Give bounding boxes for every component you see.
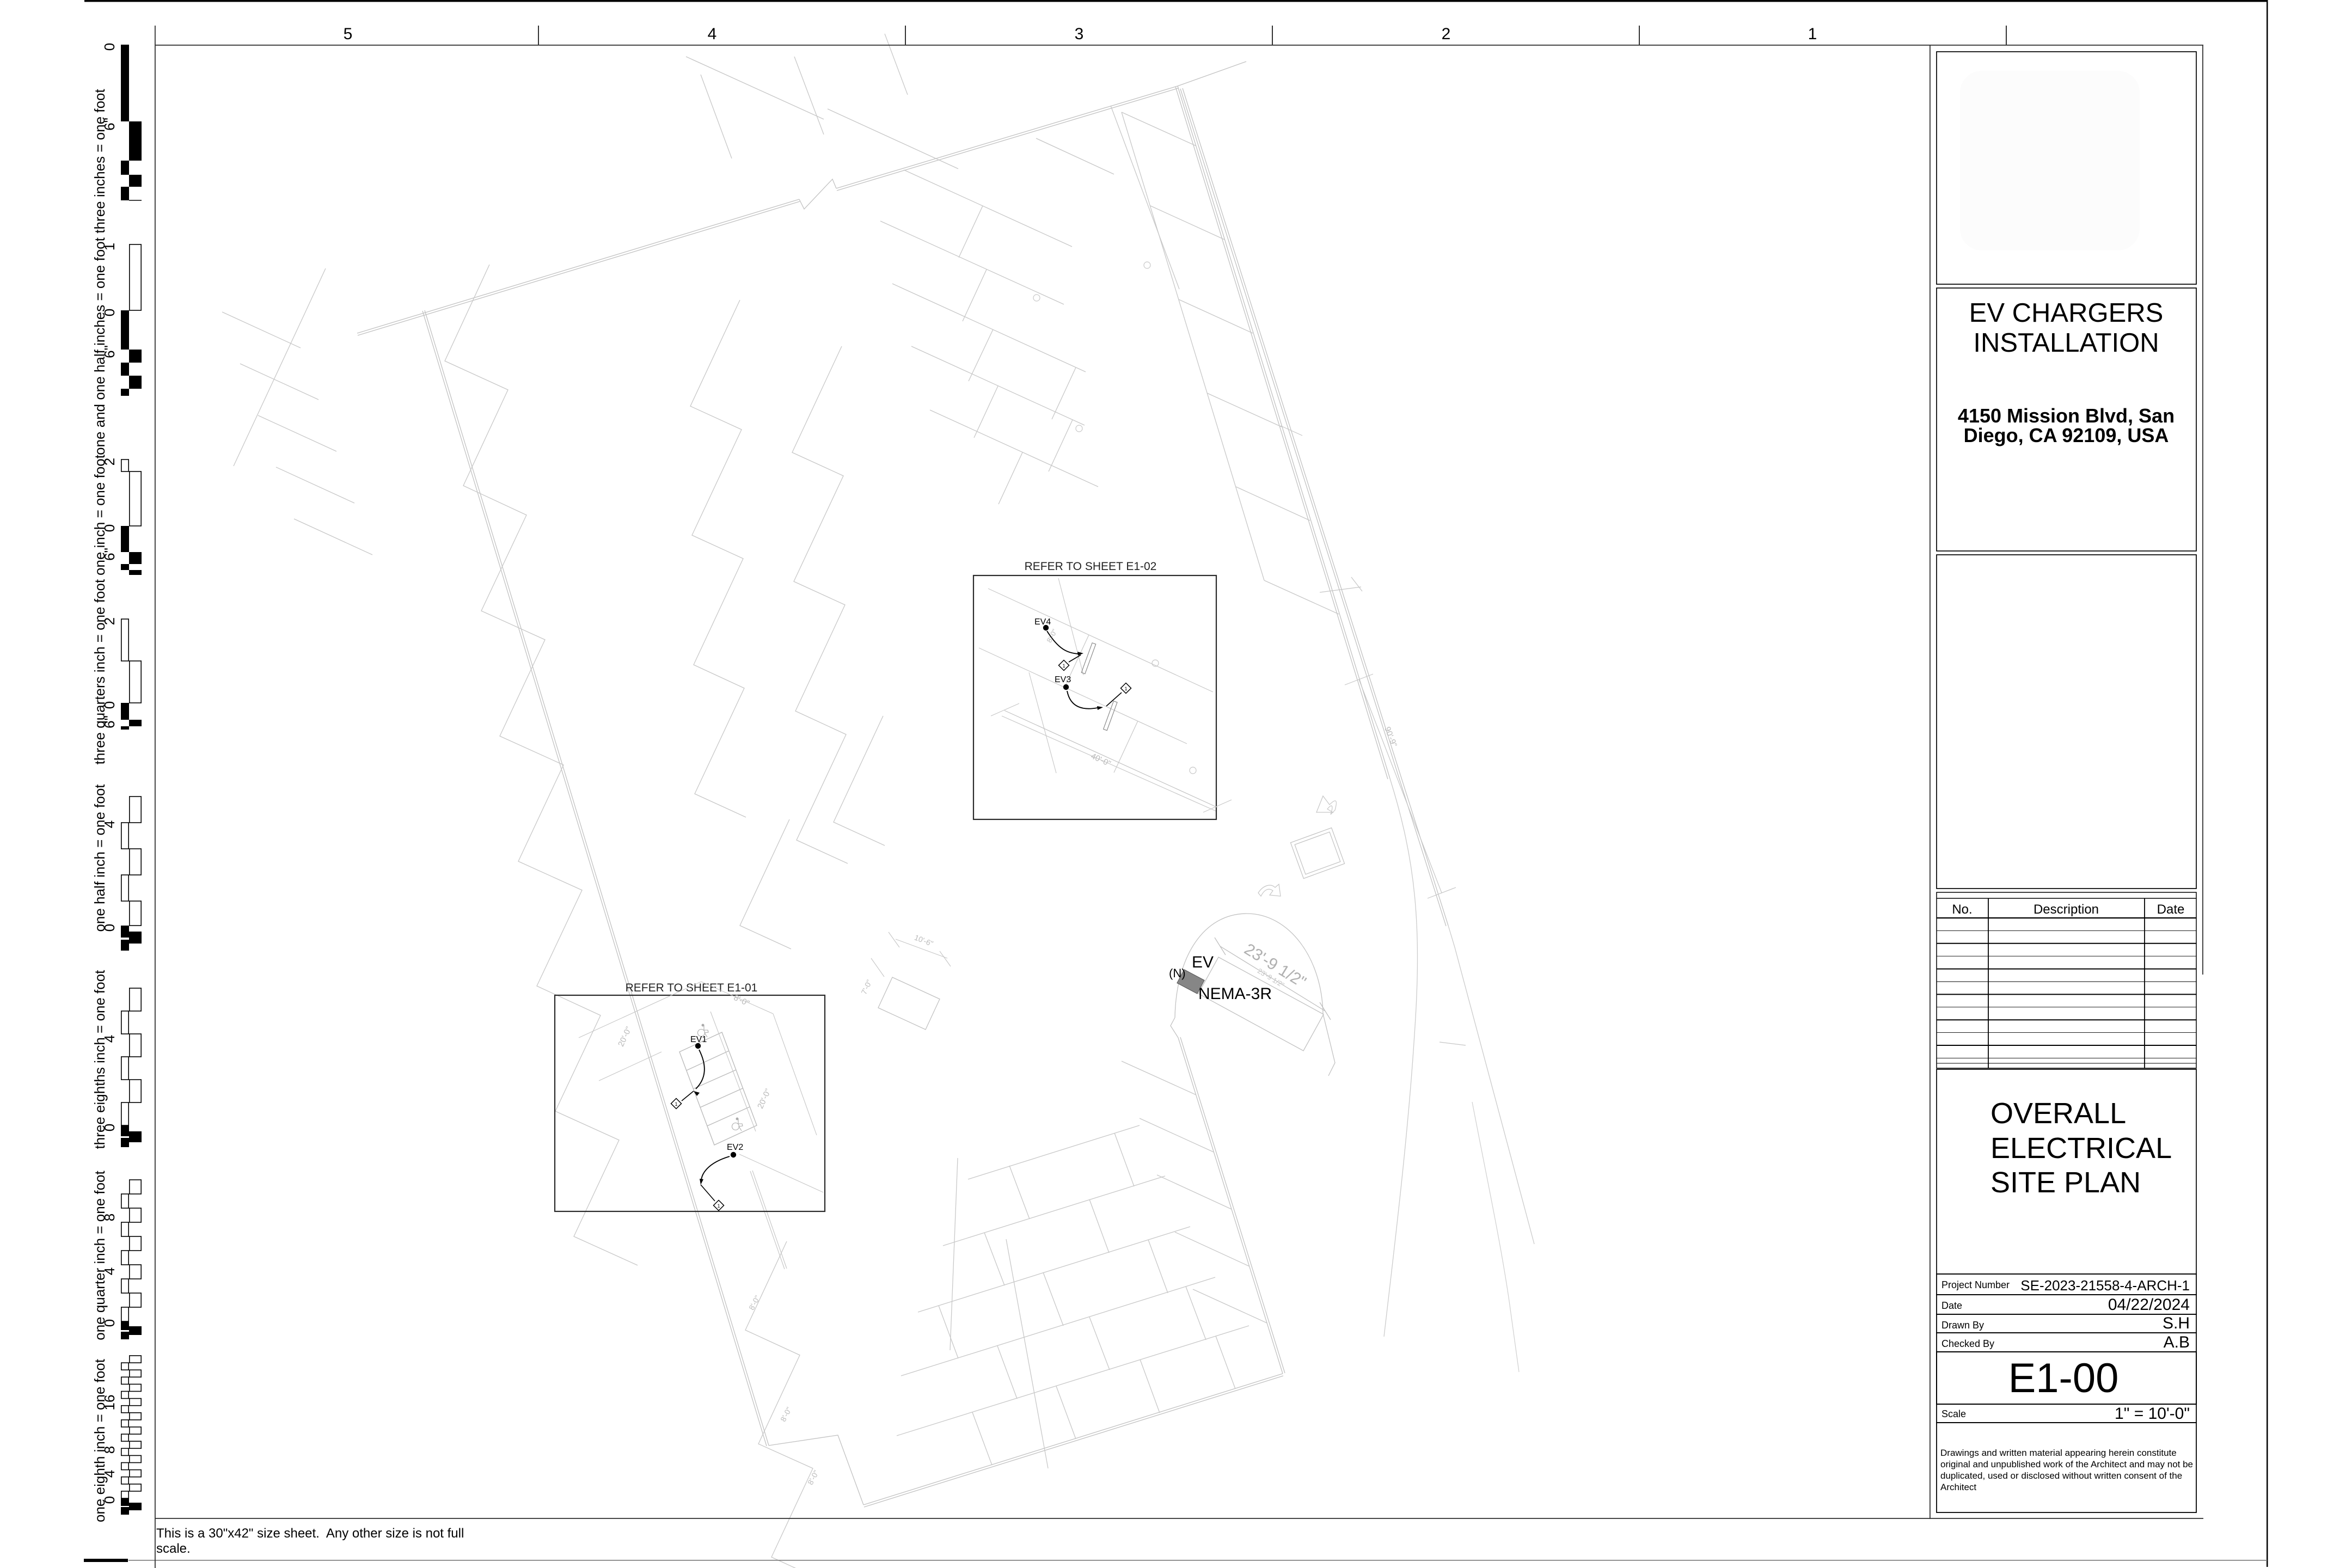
svg-text:one quarter inch = one foot: one quarter inch = one foot — [91, 1170, 108, 1340]
svg-text:one inch = one foot: one inch = one foot — [91, 454, 108, 575]
svg-text:OVERALL: OVERALL — [1990, 1097, 2126, 1130]
svg-text:EV: EV — [1192, 953, 1214, 971]
svg-text:duplicated, used or disclosed: duplicated, used or disclosed without wr… — [1940, 1471, 2182, 1481]
svg-text:Diego, CA 92109, USA: Diego, CA 92109, USA — [1964, 424, 2169, 446]
svg-text:4: 4 — [708, 25, 717, 43]
svg-text:EV CHARGERS: EV CHARGERS — [1969, 298, 2164, 328]
svg-text:INSTALLATION: INSTALLATION — [1973, 328, 2159, 358]
svg-text:Drawings and written material: Drawings and written material appearing … — [1940, 1448, 2177, 1458]
svg-text:1: 1 — [717, 1203, 720, 1209]
svg-text:This is a 30"x42" size sheet.: This is a 30"x42" size sheet. Any other … — [156, 1526, 464, 1541]
svg-text:1: 1 — [1808, 25, 1817, 43]
svg-text:EV3: EV3 — [1055, 675, 1071, 684]
svg-text:one and one half inches = one: one and one half inches = one foot — [91, 237, 108, 455]
svg-text:REFER TO SHEET E1-01: REFER TO SHEET E1-01 — [626, 982, 758, 994]
svg-text:E1-00: E1-00 — [2008, 1355, 2119, 1401]
svg-text:Checked By: Checked By — [1941, 1338, 1994, 1349]
svg-text:4150 Mission Blvd, San: 4150 Mission Blvd, San — [1958, 405, 2175, 427]
svg-text:0: 0 — [101, 43, 118, 51]
svg-text:REFER TO SHEET E1-02: REFER TO SHEET E1-02 — [1025, 560, 1157, 573]
svg-text:Date: Date — [1941, 1300, 1962, 1311]
svg-text:(N): (N) — [1169, 966, 1186, 980]
svg-text:3: 3 — [1075, 25, 1084, 43]
svg-text:Architect: Architect — [1940, 1482, 1976, 1492]
svg-text:scale.: scale. — [156, 1541, 191, 1556]
svg-text:2: 2 — [1442, 25, 1451, 43]
svg-text:1: 1 — [1124, 686, 1127, 691]
svg-text:three inches = one foot: three inches = one foot — [91, 89, 108, 234]
svg-text:SE-2023-21558-4-ARCH-1: SE-2023-21558-4-ARCH-1 — [2020, 1277, 2190, 1294]
svg-text:5: 5 — [344, 25, 353, 43]
svg-text:No.: No. — [1952, 902, 1972, 917]
svg-text:three quarters inch = one foot: three quarters inch = one foot — [91, 579, 108, 764]
svg-text:Project Number: Project Number — [1941, 1279, 2010, 1290]
svg-text:S.H: S.H — [2163, 1314, 2190, 1332]
svg-text:SITE PLAN: SITE PLAN — [1990, 1166, 2141, 1199]
svg-text:EV4: EV4 — [1034, 617, 1051, 627]
svg-text:A.B: A.B — [2164, 1333, 2190, 1351]
svg-text:Drawn By: Drawn By — [1941, 1320, 1984, 1331]
svg-text:ELECTRICAL: ELECTRICAL — [1990, 1132, 2172, 1165]
svg-text:04/22/2024: 04/22/2024 — [2108, 1296, 2190, 1314]
svg-text:three eighths inch = one foot: three eighths inch = one foot — [91, 970, 108, 1149]
svg-text:EV1: EV1 — [690, 1035, 707, 1044]
svg-text:1: 1 — [675, 1101, 677, 1107]
svg-text:one eighth inch = one foot: one eighth inch = one foot — [91, 1358, 108, 1522]
svg-text:Date: Date — [2157, 902, 2185, 917]
svg-text:EV2: EV2 — [727, 1143, 743, 1152]
svg-text:1" = 10'-0": 1" = 10'-0" — [2115, 1405, 2190, 1423]
svg-text:NEMA-3R: NEMA-3R — [1198, 985, 1272, 1003]
svg-text:Description: Description — [2033, 902, 2099, 917]
svg-text:1: 1 — [1062, 663, 1065, 669]
svg-text:Scale: Scale — [1941, 1408, 1966, 1419]
svg-text:original and unpublished work: original and unpublished work of the Arc… — [1940, 1459, 2193, 1469]
svg-text:one half inch = one foot: one half inch = one foot — [91, 784, 108, 932]
